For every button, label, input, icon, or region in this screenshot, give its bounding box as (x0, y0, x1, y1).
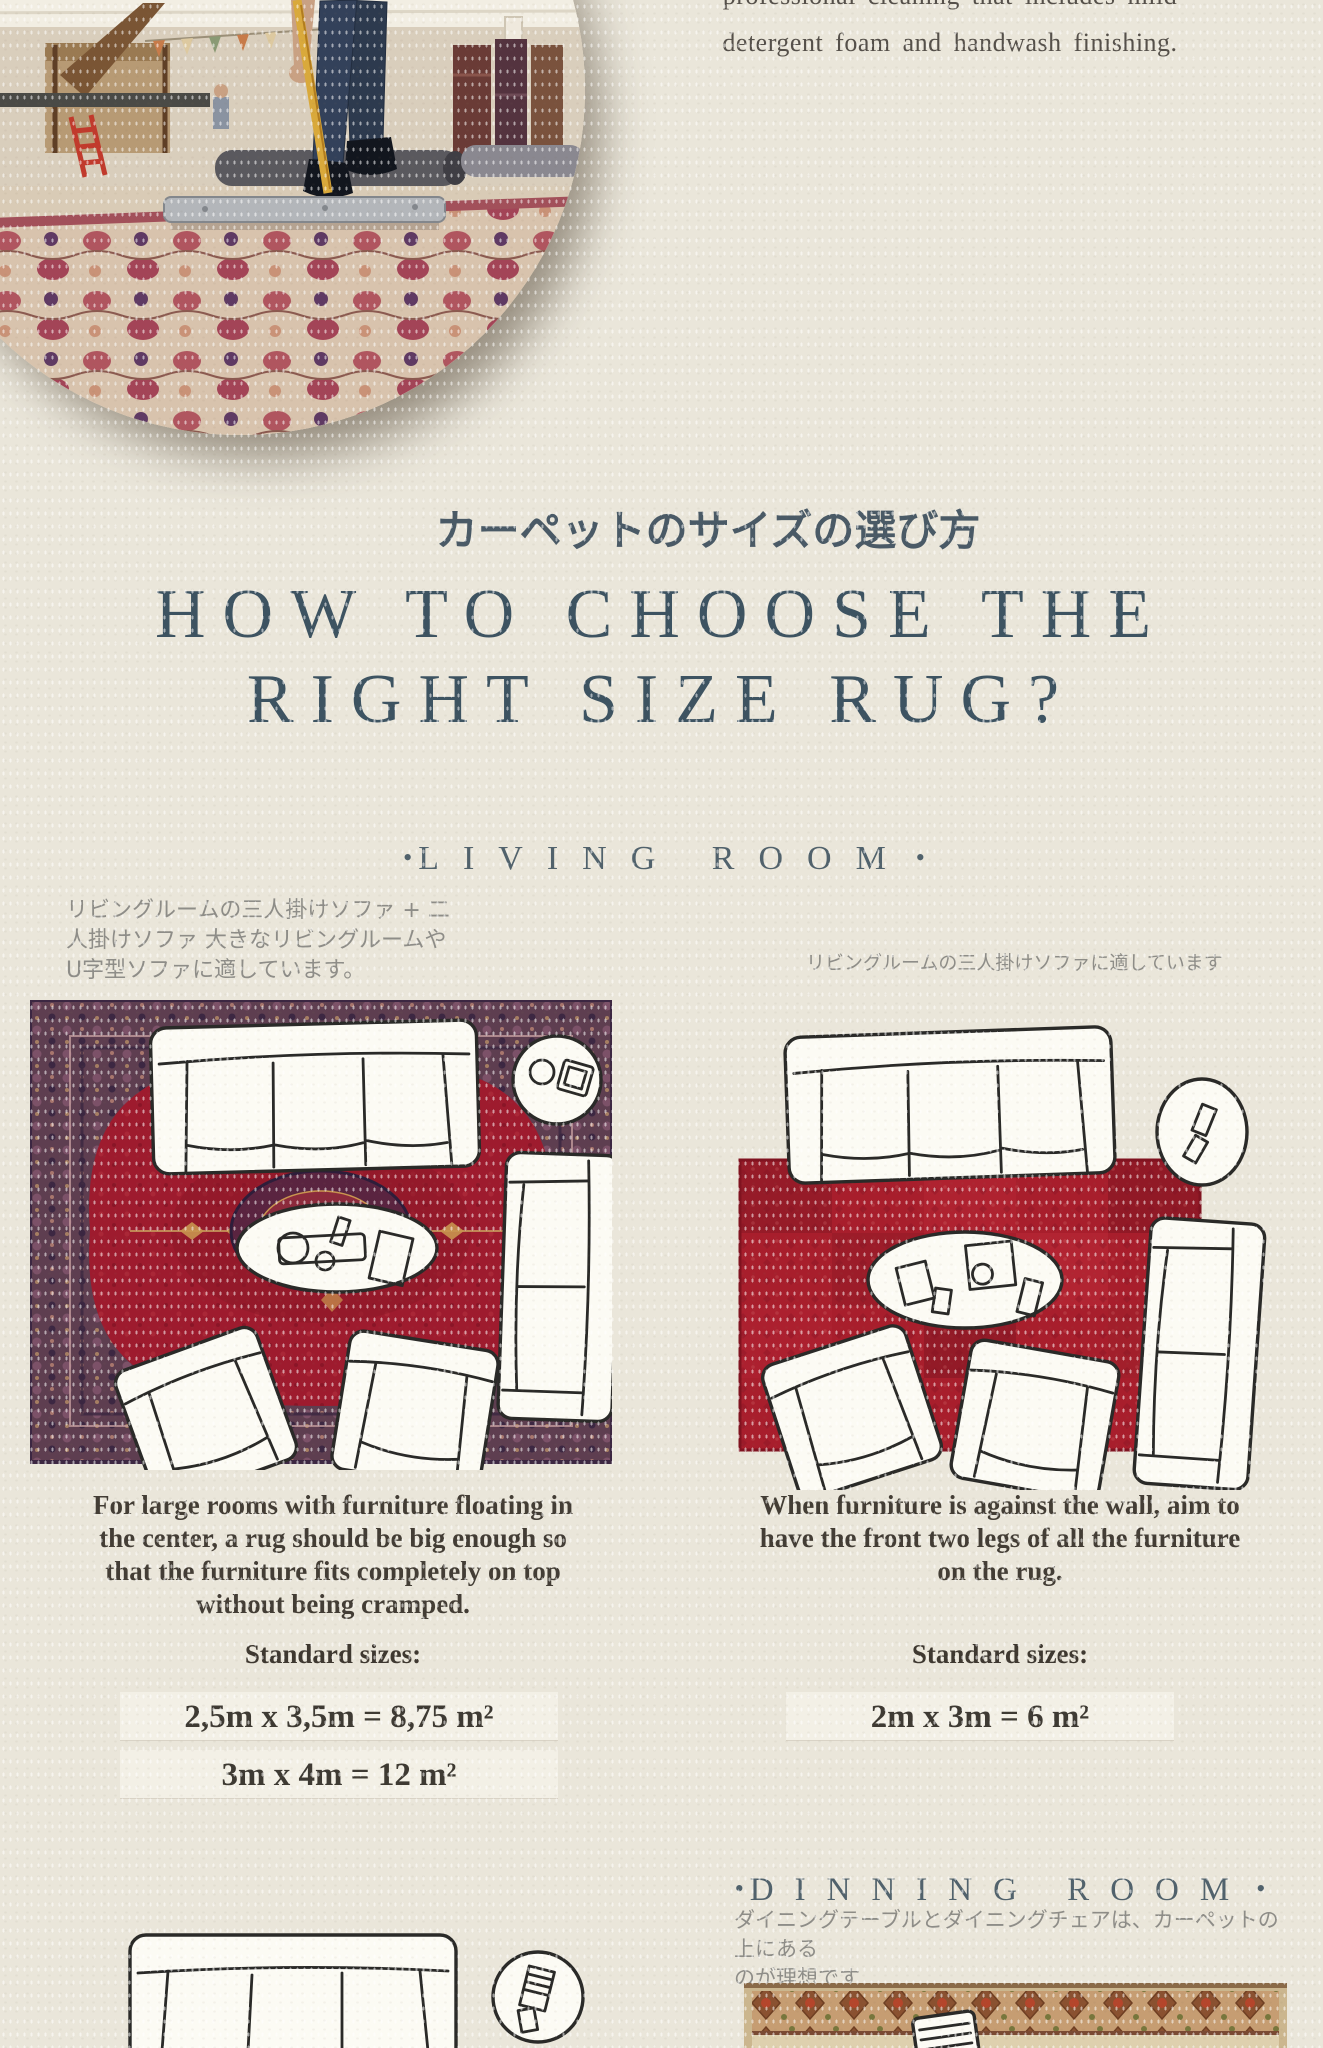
intro-line-2: detergent foam and handwash finishing. (630, 19, 1270, 66)
rug-wall-illustration (735, 1020, 1280, 1490)
standard-sizes-label-right: Standard sizes: (700, 1639, 1300, 1670)
caption-rug-wall: When furniture is against the wall, aim … (700, 1489, 1300, 1588)
jp-note-line: ダイニングテーブルとダイニングチェアは、カーペットの上にある (734, 1906, 1294, 1964)
jp-note-line: 人掛けソファ 大きなリビングルームや (66, 926, 450, 956)
caption-line: When furniture is against the wall, aim … (700, 1489, 1300, 1522)
caption-line: For large rooms with furniture floating … (33, 1489, 633, 1522)
bullet-icon: • (735, 1874, 744, 1903)
side-table-sketch (1157, 1079, 1247, 1185)
caption-line: have the front two legs of all the furni… (700, 1522, 1300, 1555)
caption-line: the center, a rug should be big enough s… (33, 1522, 633, 1555)
size-value: 3m x 4m = 12 m² (120, 1750, 558, 1798)
bullet-icon: • (916, 843, 925, 872)
bottom-sofa-sketch (110, 1930, 590, 2048)
living-room-label-text: LIVING ROOM (418, 840, 910, 877)
size-value: 2,5m x 3,5m = 8,75 m² (120, 1692, 558, 1740)
intro-paragraph: professional cleaning that includes mild… (630, 0, 1270, 66)
coffee-table-sketch (237, 1204, 437, 1292)
caption-line: on the rug. (700, 1555, 1300, 1588)
jp-page-title: カーペットのサイズの選び方 (348, 497, 1068, 558)
hero-photo-circle (0, 0, 585, 435)
side-table-sketch (513, 1036, 601, 1124)
two-seat-sofa-sketch (498, 1152, 612, 1422)
size-value: 2m x 3m = 6 m² (786, 1692, 1174, 1740)
caption-rug-centered: For large rooms with furniture floating … (33, 1489, 633, 1621)
jp-note-line: U字型ソファに適しています。 (66, 956, 450, 986)
three-seat-sofa-sketch (785, 1026, 1116, 1183)
side-table-sketch (493, 1952, 583, 2042)
section-label-dinning-room: •DINNING ROOM• (660, 1872, 1323, 1909)
bullet-icon: • (403, 843, 412, 872)
dining-rug-illustration (744, 1983, 1287, 2048)
two-seat-sofa-sketch (1133, 1217, 1265, 1490)
rug-centered-illustration (30, 1000, 612, 1470)
dinning-room-jp-note: ダイニングテーブルとダイニングチェアは、カーペットの上にある のが理想です (734, 1906, 1294, 1993)
infographic-page: professional cleaning that includes mild… (0, 0, 1323, 2048)
dining-chair-sketch (912, 2010, 983, 2048)
dinning-room-label-text: DINNING ROOM (750, 1872, 1250, 1908)
squeegee-bar (164, 197, 445, 230)
caption-line: without being cramped. (33, 1588, 633, 1621)
page-title-line-2: RIGHT SIZE RUG? (0, 657, 1323, 742)
living-room-left-jp-note: リビングルームの三人掛けソファ + 二 人掛けソファ 大きなリビングルームや U… (66, 896, 450, 986)
hanging-rugs (453, 39, 563, 161)
standard-sizes-label-left: Standard sizes: (33, 1639, 633, 1670)
hero-photo-image (0, 0, 585, 435)
armchair-sketch (949, 1338, 1121, 1490)
page-title-line-1: HOW TO CHOOSE THE (0, 572, 1323, 657)
jp-note-line: リビングルームの三人掛けソファ + 二 (66, 896, 450, 926)
caption-line: that the furniture fits completely on to… (33, 1555, 633, 1588)
page-title: HOW TO CHOOSE THE RIGHT SIZE RUG? (0, 572, 1323, 742)
armchair-sketch (330, 1329, 500, 1470)
coffee-table-sketch (868, 1232, 1062, 1328)
intro-line-1: professional cleaning that includes mild (630, 0, 1270, 19)
living-room-right-jp-note: リビングルームの三人掛けソファに適しています (806, 948, 1223, 975)
bullet-icon: • (1256, 1874, 1265, 1903)
three-seat-sofa-sketch (150, 1020, 480, 1174)
section-label-living-room: •LIVING ROOM• (0, 840, 1323, 878)
